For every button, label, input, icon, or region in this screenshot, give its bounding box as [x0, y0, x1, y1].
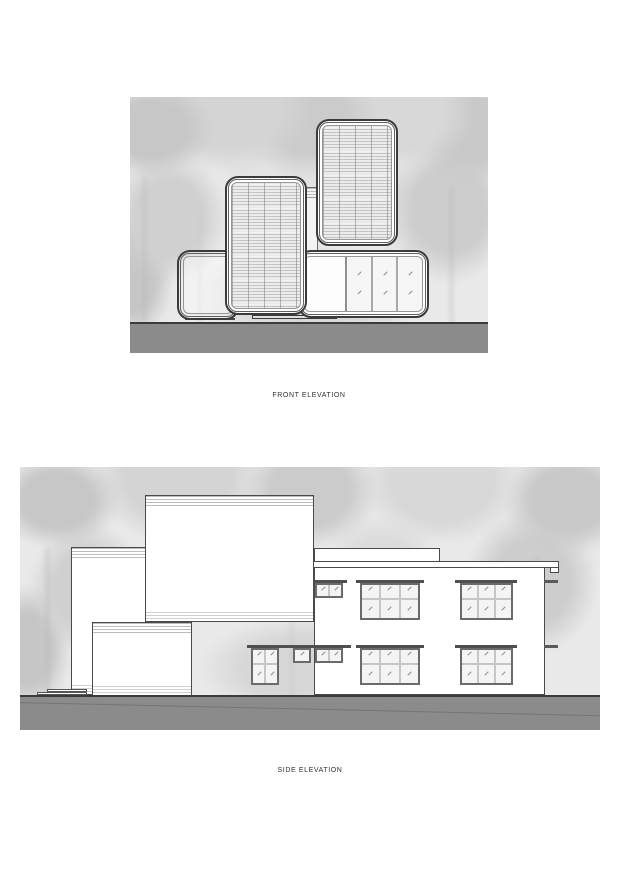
entry-step: [47, 689, 87, 692]
window-pane: [494, 585, 511, 598]
glass-reflection-mark: [407, 587, 411, 591]
window-header-lower-right: [455, 645, 517, 648]
window-pane: [264, 665, 277, 683]
glass-reflection-mark: [357, 290, 361, 294]
window-pane: [328, 585, 341, 596]
module-bottom-right: [298, 250, 429, 318]
glass-reflection-mark: [368, 587, 372, 591]
cladding-band: [146, 496, 313, 507]
glass-reflection-mark: [300, 651, 304, 655]
window-pane: [477, 665, 494, 683]
ground-slope-line: [20, 702, 600, 717]
window-row: [317, 650, 341, 661]
glass-pane: [396, 257, 422, 311]
louver-screen: [231, 182, 301, 309]
glass-reflection-mark: [388, 652, 392, 656]
window-pane: [462, 585, 477, 598]
window-row: [462, 665, 511, 683]
glass-reflection-mark: [485, 671, 489, 675]
window-row: [253, 650, 277, 665]
glass-reflection-mark: [502, 671, 506, 675]
window-pane: [462, 600, 477, 618]
glass-reflection-mark: [468, 606, 472, 610]
roof-parapet-volume: [314, 548, 440, 562]
wall-bracket: [544, 645, 558, 648]
window-pane: [399, 665, 418, 683]
glass-reflection-mark: [485, 587, 489, 591]
window-pane: [317, 585, 328, 596]
window-row: [362, 650, 418, 665]
glass-reflection-mark: [388, 671, 392, 675]
glass-reflection-mark: [409, 290, 413, 294]
glass-reflection-mark: [502, 652, 506, 656]
ground-strip: [20, 695, 600, 730]
module-center-tall: [225, 176, 307, 315]
roof-fascia: [313, 561, 559, 568]
glass-reflection-mark: [321, 586, 325, 590]
glass-reflection-mark: [368, 652, 372, 656]
glass-reflection-mark: [270, 652, 274, 656]
glass-reflection-mark: [357, 272, 361, 276]
window-header-upper-middle: [356, 580, 424, 583]
window-pane: [362, 650, 379, 663]
elevation-sheet: FRONT ELEVATION SIDE ELEVATION: [0, 0, 620, 877]
glass-reflection-mark: [468, 652, 472, 656]
roof-fascia-lip: [550, 567, 559, 573]
window-pane: [379, 585, 398, 598]
glass-reflection-mark: [388, 587, 392, 591]
blank-panel: [305, 257, 345, 311]
window-pane: [253, 665, 264, 683]
window-pane: [494, 600, 511, 618]
glass-reflection-mark: [321, 651, 325, 655]
glass-pane: [345, 257, 371, 311]
glass-reflection-mark: [502, 587, 506, 591]
lower-left-block: [92, 622, 192, 696]
window-pane: [264, 650, 277, 663]
module-right-tall: [316, 119, 398, 246]
glass-reflection-mark: [485, 652, 489, 656]
glass-reflection-mark: [407, 606, 411, 610]
glass-reflection-mark: [502, 606, 506, 610]
module-glazing: [304, 256, 423, 312]
window-row: [462, 585, 511, 600]
side-window-upper-middle: [360, 583, 420, 620]
glass-pane: [371, 257, 397, 311]
window-pane: [253, 650, 264, 663]
window-row: [462, 600, 511, 618]
window-pane: [462, 665, 477, 683]
cladding-band: [146, 612, 313, 621]
window-pane: [379, 600, 398, 618]
window-header-upper-small: [310, 580, 347, 583]
glass-reflection-mark: [485, 606, 489, 610]
side-window-upper-small: [315, 583, 343, 598]
window-row: [317, 585, 341, 596]
side-elevation-caption: SIDE ELEVATION: [20, 767, 600, 774]
cladding-band: [93, 686, 191, 695]
louver-screen: [322, 125, 392, 240]
window-pane: [362, 665, 379, 683]
glass-reflection-mark: [468, 671, 472, 675]
window-pane: [362, 585, 379, 598]
glass-reflection-mark: [383, 272, 387, 276]
side-window-lower-small-b: [315, 648, 343, 663]
window-pane: [462, 650, 477, 663]
window-header-lower-middle: [356, 645, 424, 648]
glass-reflection-mark: [270, 671, 274, 675]
ground-strip: [130, 322, 488, 353]
window-pane: [494, 650, 511, 663]
window-pane: [295, 650, 309, 661]
window-pane: [362, 600, 379, 618]
side-window-lower-tall: [251, 648, 279, 685]
side-window-lower-small-a: [293, 648, 311, 663]
glass-reflection-mark: [257, 652, 261, 656]
glass-reflection-mark: [334, 586, 338, 590]
cladding-band: [93, 623, 191, 634]
window-row: [362, 585, 418, 600]
side-window-lower-right: [460, 648, 513, 685]
window-pane: [328, 650, 341, 661]
window-header-upper-right: [455, 580, 517, 583]
window-pane: [494, 665, 511, 683]
large-front-block: [145, 495, 314, 622]
window-row: [462, 650, 511, 665]
side-elevation-drawing: [20, 467, 600, 730]
window-pane: [399, 650, 418, 663]
front-elevation-drawing: [130, 97, 488, 353]
glass-reflection-mark: [409, 272, 413, 276]
window-header-lower-tall: [247, 645, 351, 648]
side-window-lower-middle: [360, 648, 420, 685]
glass-reflection-mark: [407, 652, 411, 656]
window-pane: [399, 585, 418, 598]
module-frame: [301, 253, 426, 315]
window-pane: [379, 650, 398, 663]
window-row: [295, 650, 309, 661]
window-pane: [477, 650, 494, 663]
window-pane: [477, 600, 494, 618]
module-frame: [319, 122, 395, 243]
front-elevation-caption: FRONT ELEVATION: [130, 392, 488, 399]
wall-bracket: [544, 580, 558, 583]
glass-reflection-mark: [388, 606, 392, 610]
glass-reflection-mark: [368, 671, 372, 675]
side-window-upper-right: [460, 583, 513, 620]
glass-reflection-mark: [383, 290, 387, 294]
glass-reflection-mark: [257, 671, 261, 675]
glass-reflection-mark: [407, 671, 411, 675]
glass-reflection-mark: [368, 606, 372, 610]
glass-reflection-mark: [334, 651, 338, 655]
window-pane: [317, 650, 328, 661]
window-row: [362, 600, 418, 618]
window-row: [253, 665, 277, 683]
module-frame: [228, 179, 304, 312]
glass-panels: [345, 257, 422, 311]
window-pane: [399, 600, 418, 618]
window-pane: [477, 585, 494, 598]
glass-reflection-mark: [468, 587, 472, 591]
window-row: [362, 665, 418, 683]
window-pane: [379, 665, 398, 683]
cladding-band: [72, 548, 145, 559]
